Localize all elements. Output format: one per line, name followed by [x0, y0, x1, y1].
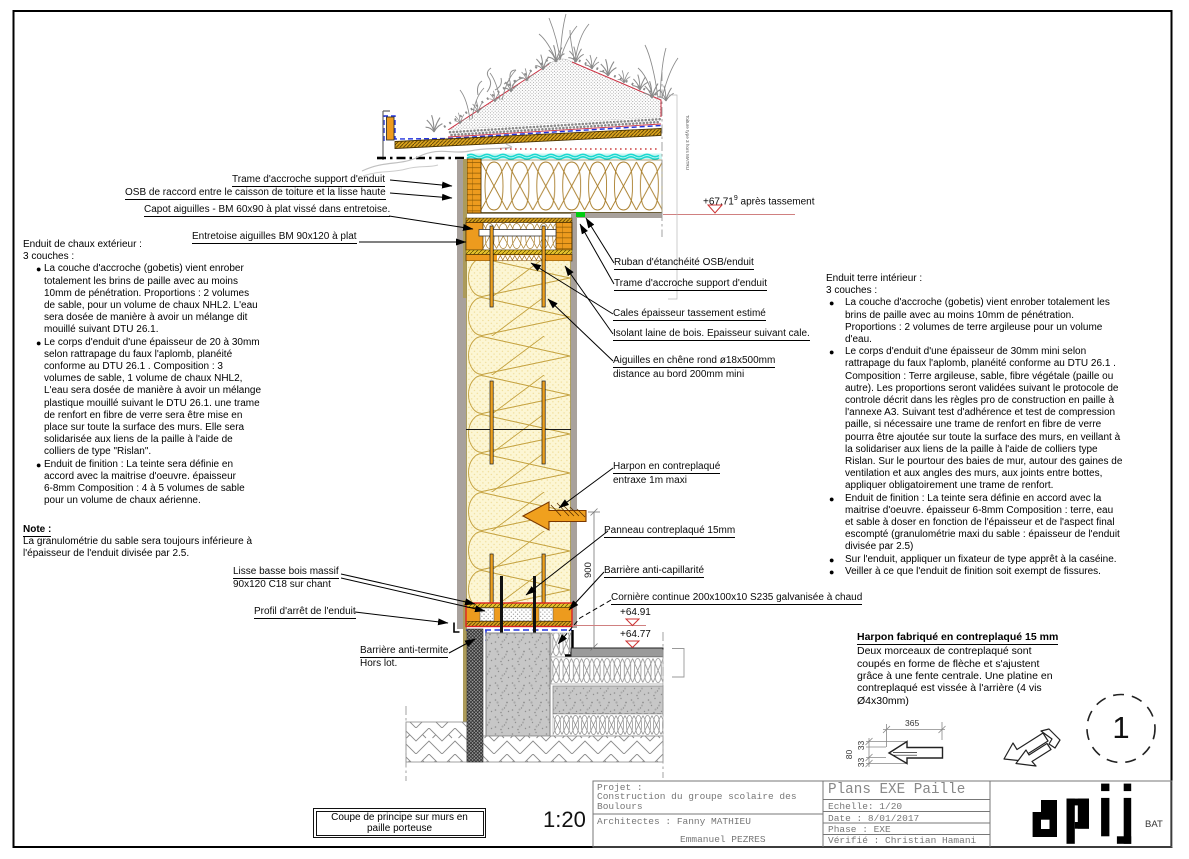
- svg-text:900: 900: [583, 562, 594, 578]
- svg-text:Toiture type 3 hors MATRU: Toiture type 3 hors MATRU: [685, 115, 690, 170]
